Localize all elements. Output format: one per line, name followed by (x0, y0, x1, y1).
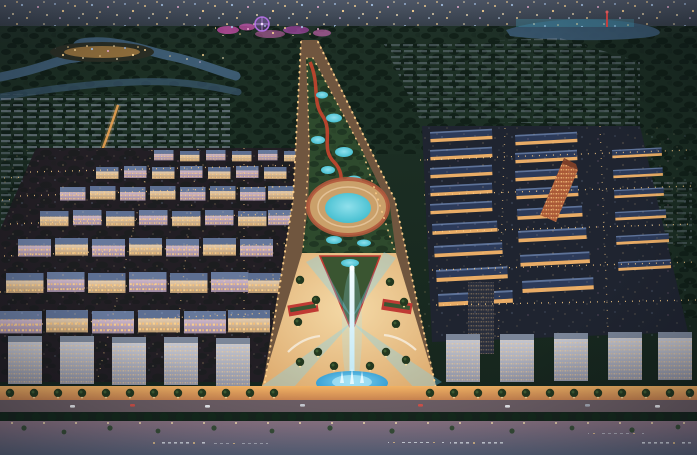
scene-canvas (0, 0, 697, 455)
city-aerial-render (0, 0, 697, 455)
vignette-overlay (0, 0, 697, 455)
